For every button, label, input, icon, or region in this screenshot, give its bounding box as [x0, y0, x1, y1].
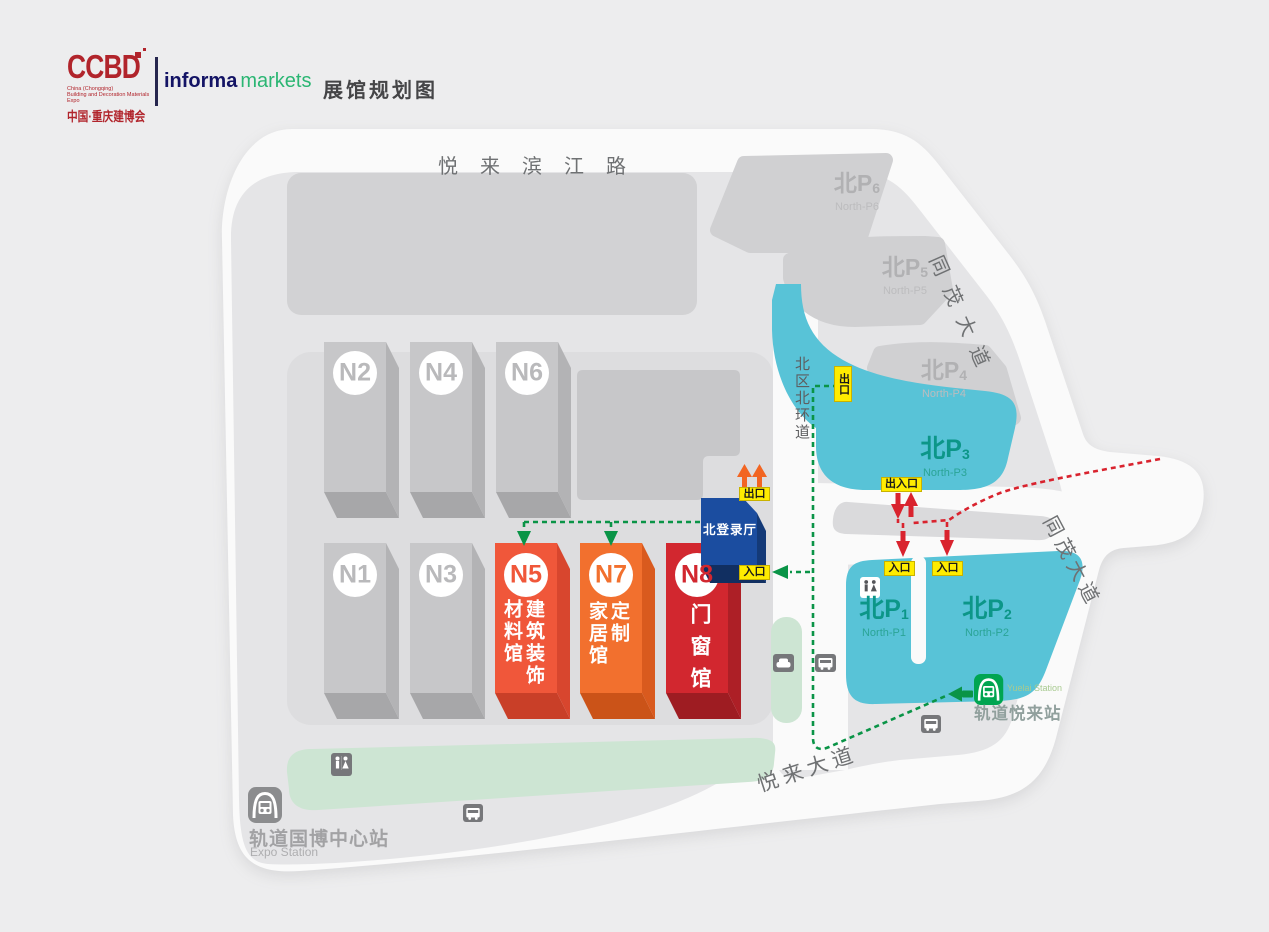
- exit-entrance-marker: 出入口: [881, 477, 922, 492]
- informa-wordmark: informa: [164, 70, 237, 92]
- parking-p2-label: 北P2 North-P2: [937, 598, 1037, 639]
- entrance-marker-p1: 入口: [884, 561, 915, 576]
- bus-icon-roadside: [815, 654, 836, 672]
- station-yuelai-name: 轨道悦来站: [974, 700, 1062, 724]
- restroom-icon: [331, 753, 352, 776]
- metro-icon-expo: [248, 787, 282, 823]
- exit-marker-p3: 出口: [834, 366, 852, 402]
- hall-n7-id: N7: [595, 561, 627, 590]
- hall-n3-id: N3: [425, 561, 457, 590]
- parking-p6-label: 北P6 North-P6: [812, 172, 902, 213]
- entrance-marker-hall: 入口: [739, 565, 770, 580]
- parking-p4-label: 北P4 North-P4: [899, 359, 989, 400]
- hall-n8-name: 门窗馆: [684, 603, 710, 699]
- hall-n5-name: 建筑装饰 材料馆: [498, 599, 544, 691]
- parking-p5-label: 北P5 North-P5: [860, 256, 950, 297]
- hall-n8-id: N8: [681, 561, 713, 590]
- taxi-icon: [773, 654, 794, 672]
- hall-n6-id: N6: [511, 359, 543, 388]
- bus-icon-south-east: [921, 715, 941, 733]
- map-canvas: [0, 0, 1269, 932]
- hall-n7-name: 定制 家居馆: [583, 601, 629, 673]
- hall-n1-id: N1: [339, 561, 371, 590]
- markets-wordmark: markets: [240, 70, 311, 92]
- road-riverside-label: 悦来滨江路: [438, 150, 648, 179]
- ccbd-chinese-name: 中国·重庆建博会: [67, 106, 141, 125]
- station-yuelai-name-en: Yuelai Station: [1007, 683, 1062, 693]
- ccbd-logo-text: CCBD: [67, 50, 139, 83]
- informa-markets-logo: informamarkets: [164, 70, 311, 93]
- hall-n4-id: N4: [425, 359, 457, 388]
- registration-hall-label: 北登录厅: [703, 519, 755, 538]
- entrance-marker-p2: 入口: [932, 561, 963, 576]
- road-north-ring-label: 北区北环道: [791, 356, 812, 441]
- hall-n5-id: N5: [510, 561, 542, 590]
- parking-p1-label: 北P1 North-P1: [834, 598, 934, 639]
- exhibition-map-page: CCBD China (Chongqing) Building and Deco…: [0, 0, 1269, 932]
- station-expo-name-en: Expo Station: [250, 845, 318, 859]
- exit-marker-hall: 出口: [739, 487, 770, 501]
- logo-divider: [155, 57, 158, 106]
- north-block: [287, 173, 697, 315]
- ccbd-tagline: China (Chongqing) Building and Decoratio…: [67, 86, 157, 104]
- page-title: 展馆规划图: [323, 74, 438, 103]
- hall-n2-id: N2: [339, 359, 371, 388]
- bus-icon-south: [463, 804, 483, 822]
- parking-p3-label: 北P3 North-P3: [895, 438, 995, 479]
- ccbd-logo: CCBD China (Chongqing) Building and Deco…: [67, 50, 157, 110]
